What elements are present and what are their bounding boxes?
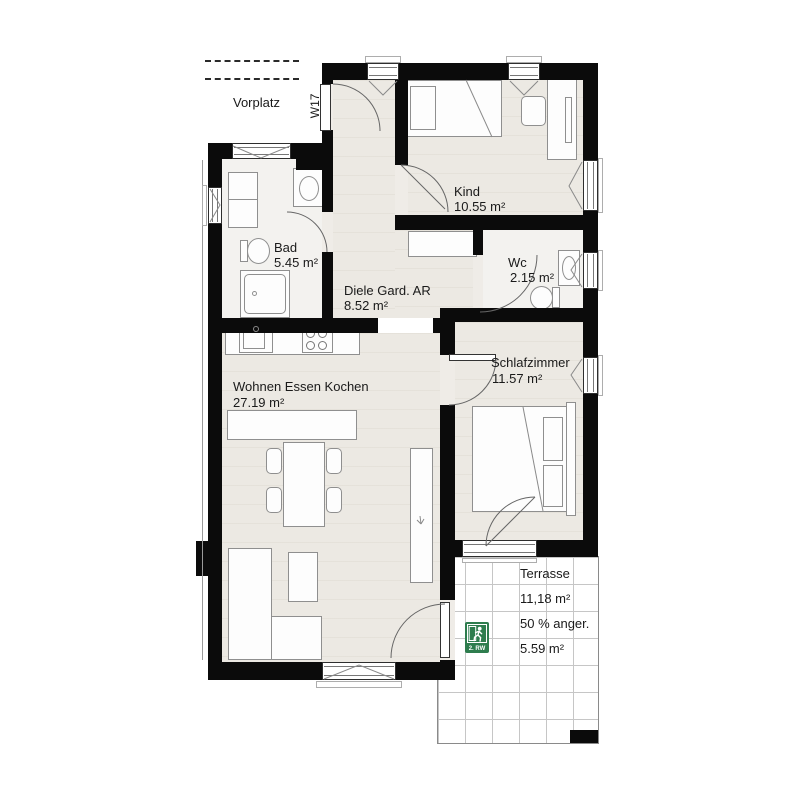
window-kind-east	[583, 160, 598, 211]
roofline-dashed-2	[205, 78, 299, 80]
room-area-wohnen: 27.19 m²	[233, 396, 284, 411]
toilet-wc-bowl	[530, 286, 553, 310]
window-sill	[202, 185, 207, 226]
sofa-chaise	[271, 616, 322, 660]
terrace-door-wohnen-leaf	[440, 602, 450, 658]
wall	[322, 252, 333, 318]
window-sill	[598, 158, 603, 213]
window-schlafzimmer-east	[583, 357, 598, 394]
wall	[322, 63, 333, 84]
shower-tray	[244, 274, 286, 314]
doorway-bad	[322, 212, 333, 252]
unit-label: W17	[309, 88, 323, 124]
room-area-wc: 2.15 m²	[510, 271, 554, 286]
room-label-bad: Bad	[274, 241, 297, 256]
dining-table	[283, 442, 325, 527]
wall	[395, 215, 583, 230]
stove-burner	[318, 341, 327, 350]
window-sill	[365, 56, 401, 63]
wall	[222, 318, 378, 333]
wall	[322, 130, 333, 159]
washer-column-bottom	[228, 199, 258, 228]
terrace-note: 50 % anger.	[520, 617, 589, 632]
double-bed-pillow-2	[543, 465, 563, 507]
room-label-wc: Wc	[508, 256, 527, 271]
wall	[433, 318, 455, 333]
room-area-bad: 5.45 m²	[274, 256, 318, 271]
wall	[440, 333, 455, 355]
desk-chair	[521, 96, 546, 126]
sideboard	[410, 448, 433, 583]
wardrobe	[408, 231, 477, 257]
toilet-wc-tank	[552, 287, 560, 308]
dining-chair	[326, 487, 342, 513]
facade-line	[202, 160, 203, 660]
bed-pillow	[410, 86, 436, 130]
window-sill	[316, 681, 402, 688]
running-man-icon	[467, 624, 487, 643]
dining-chair	[266, 487, 282, 513]
shower-drain	[252, 291, 257, 296]
washbasin-bowl	[299, 176, 319, 201]
room-label-wohnen: Wohnen Essen Kochen	[233, 380, 369, 395]
doorway-schlafzimmer	[440, 355, 455, 405]
terrace-counted-area: 5.59 m²	[520, 642, 564, 657]
terrace-label: Terrasse	[520, 567, 570, 582]
washer-column-top	[228, 172, 258, 200]
dining-chair	[326, 448, 342, 474]
wall	[296, 159, 333, 170]
roofline-dashed-1	[205, 60, 299, 62]
schlafzimmer-door-leaf	[449, 354, 496, 361]
doorway-kind	[395, 165, 408, 215]
wall	[473, 230, 483, 255]
toilet-bad-bowl	[247, 238, 270, 264]
coffee-table	[288, 552, 318, 602]
window-diele-top	[367, 63, 399, 80]
room-label-vorplatz: Vorplatz	[233, 96, 280, 111]
double-bed-pillow-1	[543, 417, 563, 461]
wall	[395, 80, 408, 165]
kitchen-island	[227, 410, 357, 440]
window-bad-north	[232, 143, 291, 159]
window-sill	[598, 355, 603, 396]
dining-chair	[266, 448, 282, 474]
window-sill	[506, 56, 542, 63]
sofa-main	[228, 548, 272, 660]
wall	[322, 63, 598, 80]
washbasin-wc-bowl	[562, 256, 576, 280]
terrace-pillar	[570, 730, 598, 743]
headboard	[566, 402, 576, 516]
window-kind-top	[508, 63, 540, 80]
desk-monitor	[565, 97, 572, 143]
doorway-wc	[473, 255, 483, 313]
wall	[583, 63, 598, 557]
stove-burner	[306, 341, 315, 350]
room-area-schlafzimmer: 11.57 m²	[492, 372, 542, 387]
window-wc-east	[583, 252, 598, 289]
room-label-kind: Kind	[454, 185, 480, 200]
window-sill	[598, 250, 603, 291]
room-label-diele: Diele Gard. AR	[344, 284, 431, 299]
kitchen-sink-basin	[243, 331, 265, 349]
room-area-kind: 10.55 m²	[454, 200, 505, 215]
door-sill	[462, 558, 537, 563]
wall	[440, 308, 583, 322]
window-wohnen-south	[322, 662, 396, 680]
wall	[440, 405, 455, 600]
escape-route-sign: 2. RW	[465, 622, 489, 653]
escape-sign-label: 2. RW	[465, 646, 489, 652]
terrace-door-schlafzimmer	[462, 540, 537, 557]
window-bad-west	[208, 187, 222, 224]
desk	[547, 78, 577, 160]
floor-plan: Vorplatz W17 Kind 10.55 m² Bad 5.45 m² D…	[0, 0, 800, 800]
room-area-diele: 8.52 m²	[344, 299, 388, 314]
terrace-tiles	[437, 556, 599, 744]
room-label-schlafzimmer: Schlafzimmer	[491, 356, 570, 371]
terrace-gross-area: 11,18 m²	[520, 592, 570, 607]
